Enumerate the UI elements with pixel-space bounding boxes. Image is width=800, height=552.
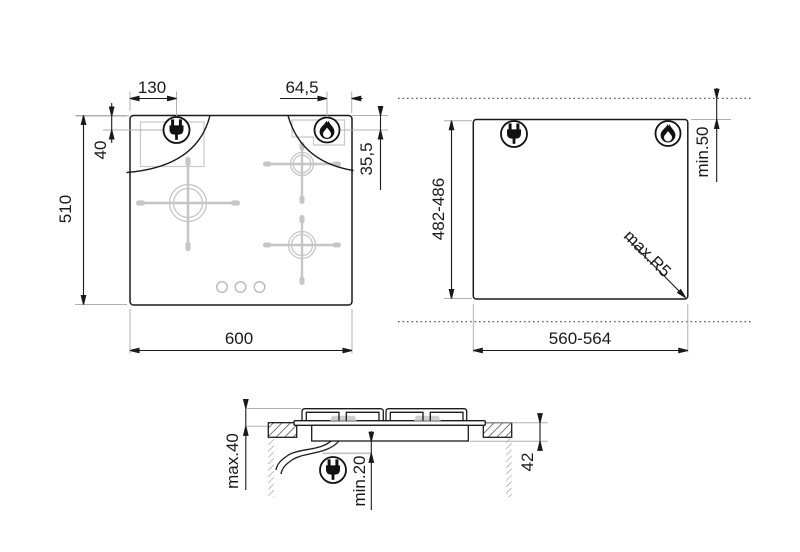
dim-label-rear-clearance: min.50 <box>693 112 713 192</box>
dim-label-plug-offset-y: 40 <box>91 110 111 190</box>
dim-label-depth: 510 <box>56 169 76 249</box>
dim-label-height-above: max.40 <box>223 421 243 501</box>
hob-top-view <box>75 92 388 354</box>
gas-flame-icon <box>656 121 681 146</box>
dim-label-cutout-height: 482-486 <box>429 169 449 249</box>
dim-label-cutout-width: 560-564 <box>540 329 620 349</box>
hob-tub <box>312 425 469 441</box>
hob-outline <box>130 116 352 306</box>
worktop-section-right <box>483 423 511 438</box>
gas-flame-icon <box>315 118 340 143</box>
worktop-section-left <box>268 423 296 438</box>
dim-label-plug-offset-x: 130 <box>112 78 192 98</box>
dim-label-width: 600 <box>199 329 279 349</box>
dim-label-recess-depth: 42 <box>518 422 538 502</box>
power-plug-icon <box>164 117 190 143</box>
cabinet-side-left <box>268 437 274 497</box>
power-plug-icon <box>320 457 346 483</box>
side-section-view <box>244 399 548 510</box>
installation-diagram: 130 64,5 40 35,5 510 600 482-486 560-564… <box>0 0 800 552</box>
hob-top-plate <box>294 421 485 426</box>
cabinet-side-right <box>506 437 512 497</box>
pan-support-right <box>386 409 467 421</box>
power-plug-icon <box>501 121 527 147</box>
dim-label-flame-offset-x: 64,5 <box>262 78 342 98</box>
pan-support-left <box>302 409 383 421</box>
dim-label-flame-offset-y: 35,5 <box>357 119 377 199</box>
dim-label-clearance-below: min.20 <box>350 441 370 521</box>
